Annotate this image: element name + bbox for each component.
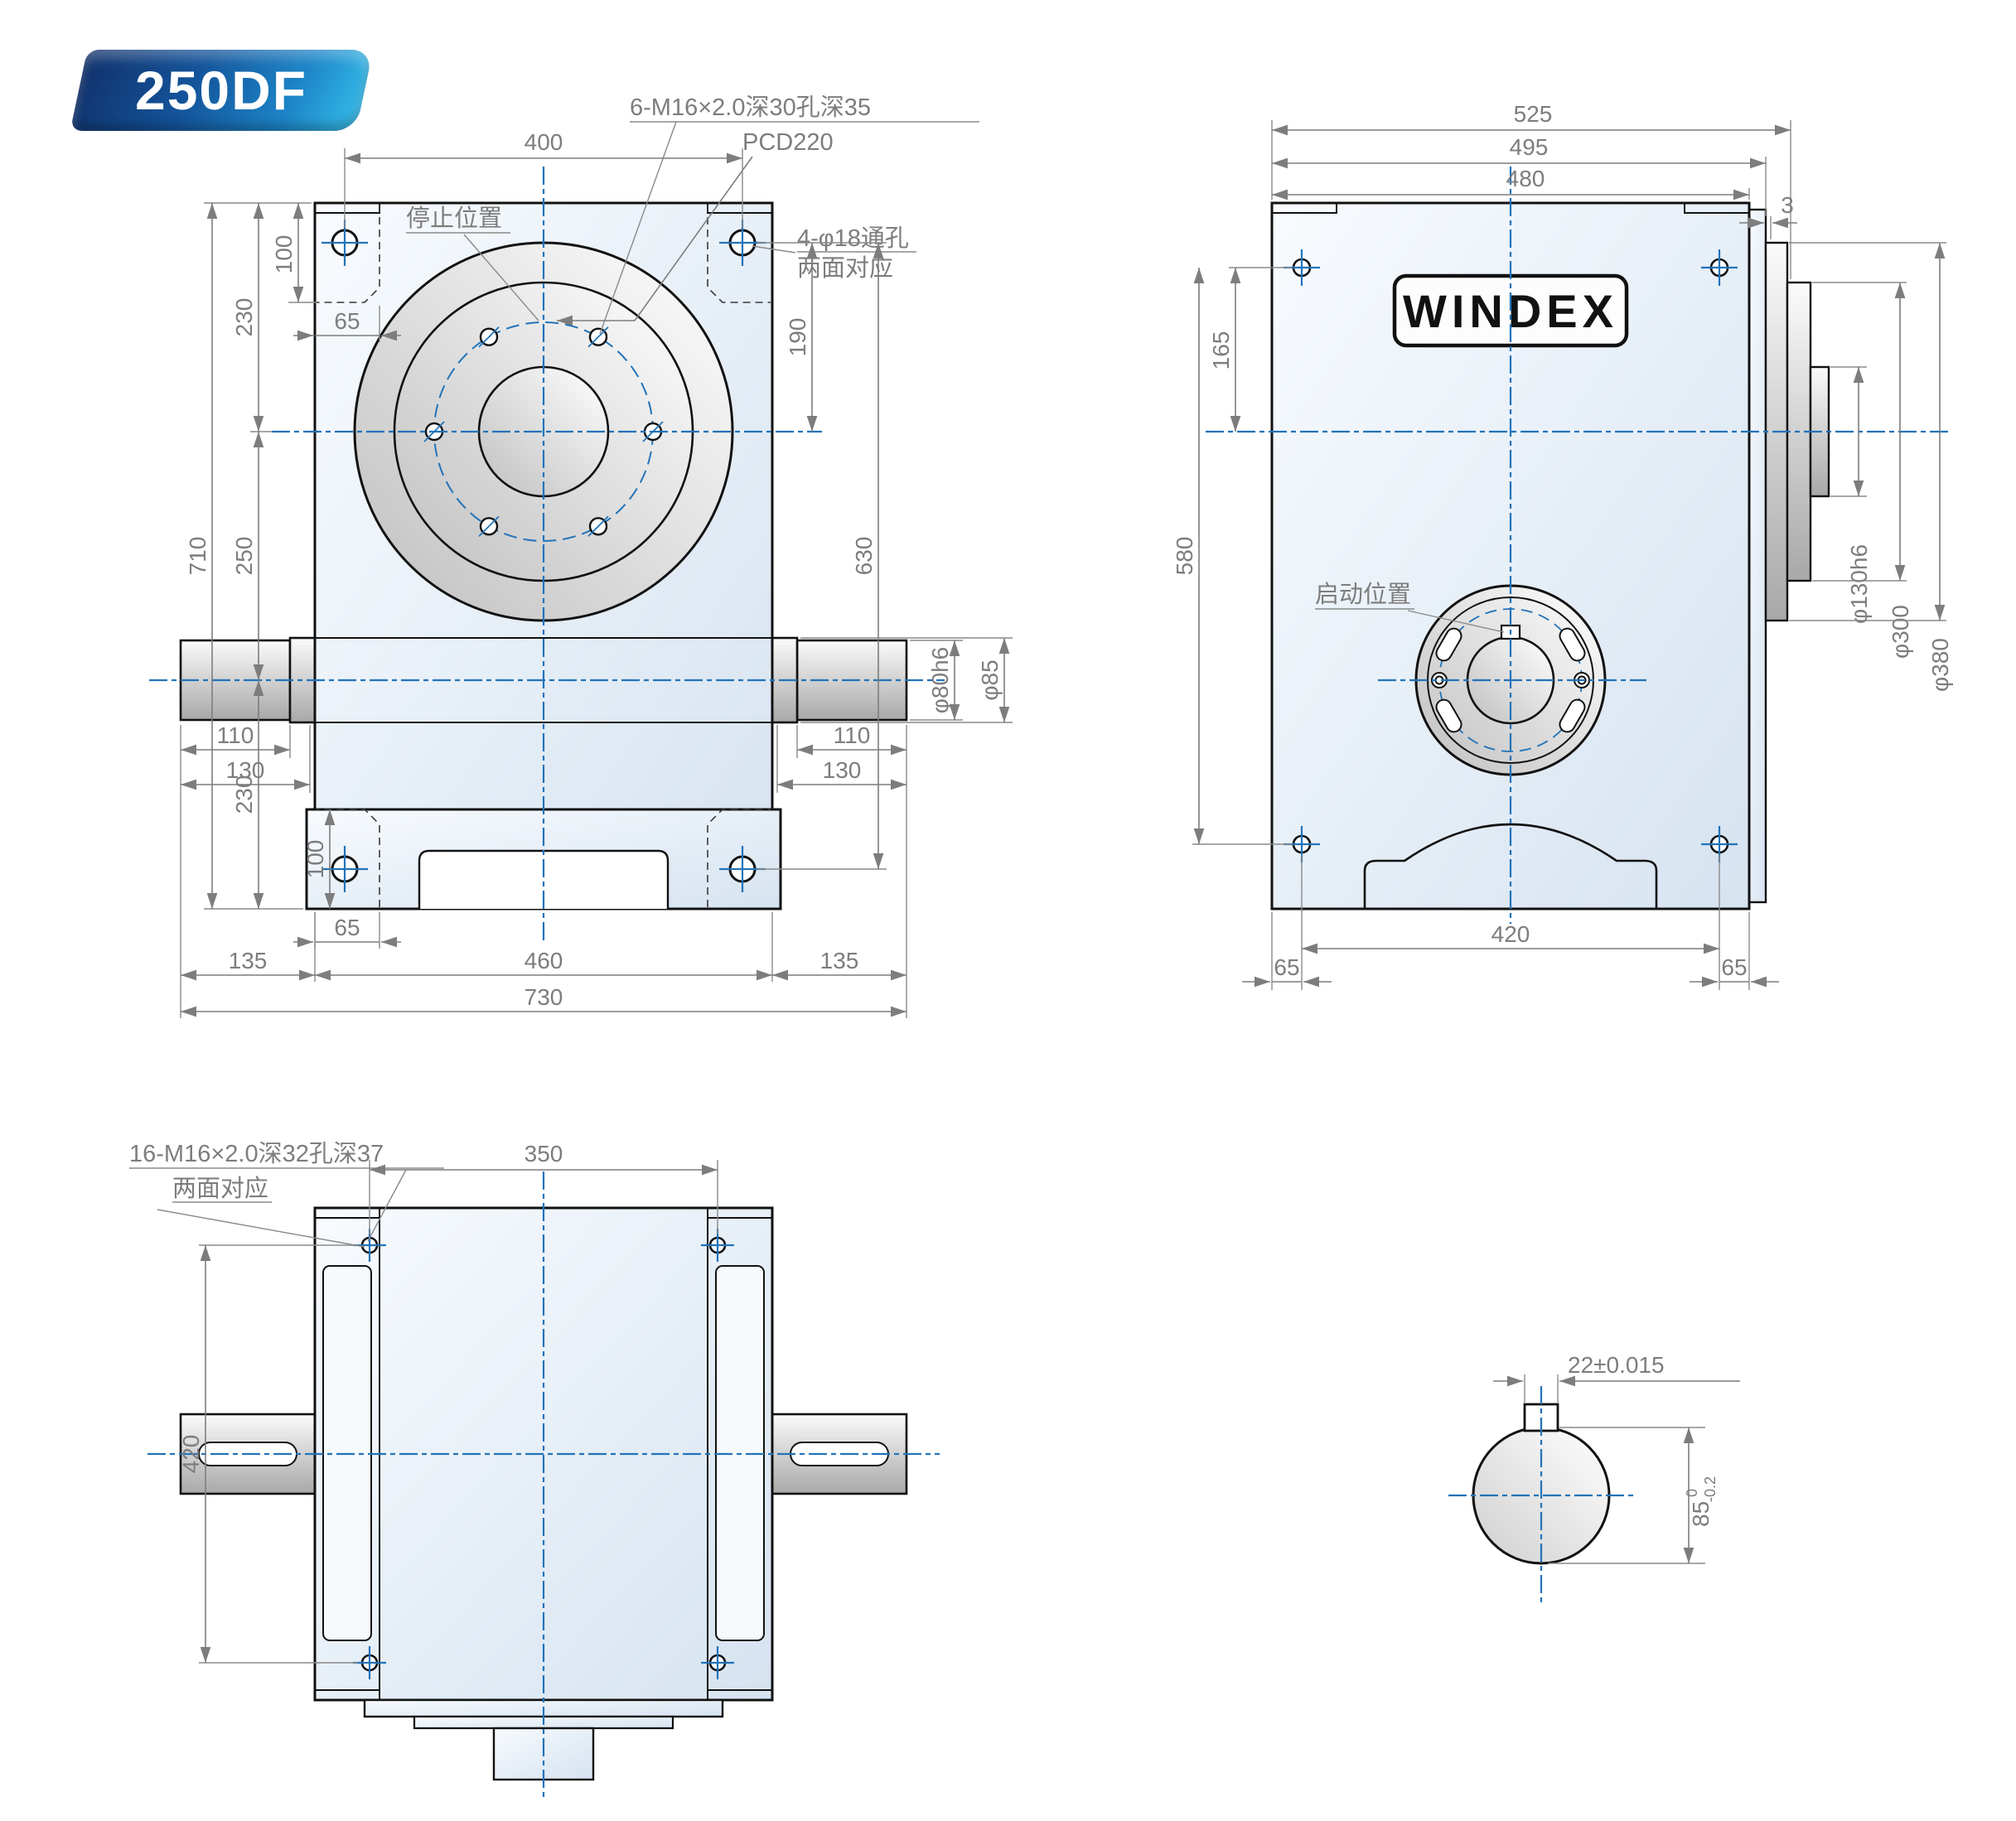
svg-text:110: 110 [834, 722, 871, 748]
svg-text:495: 495 [1510, 134, 1549, 160]
svg-text:65: 65 [334, 308, 360, 334]
bottom-tap-text: 16-M16×2.0深32孔深37 [129, 1141, 384, 1167]
svg-text:480: 480 [1506, 166, 1545, 191]
svg-text:230: 230 [231, 298, 257, 337]
rear-plate-and-steps [1749, 210, 1829, 902]
dim-135-right: 135 [772, 948, 906, 975]
dim-230-top: 230 [231, 203, 272, 432]
tap-note-text: 6-M16×2.0深30孔深35 [630, 94, 871, 121]
svg-text:420: 420 [178, 1435, 204, 1474]
svg-text:φ300: φ300 [1888, 605, 1913, 659]
shaft-section-detail: 22±0.015 85 0 -0.2 [1351, 1288, 1815, 1678]
dim-key-22: 22±0.015 [1493, 1352, 1740, 1403]
dim-730: 730 [181, 984, 906, 1012]
through-hole-text: 4-φ18通孔 [797, 225, 909, 252]
tol-upper: 0 [1684, 1489, 1700, 1497]
svg-text:110: 110 [217, 722, 254, 748]
key-dim-text: 22±0.015 [1568, 1352, 1665, 1378]
dim-135-left: 135 [181, 912, 315, 982]
svg-text:65: 65 [1721, 954, 1747, 980]
svg-text:400: 400 [525, 129, 563, 155]
svg-text:460: 460 [525, 948, 563, 973]
svg-text:65: 65 [334, 915, 360, 940]
svg-text:630: 630 [851, 537, 877, 576]
bottom-both-text: 两面对应 [172, 1175, 268, 1202]
bottom-view: 16-M16×2.0深32孔深37 两面对应 350 420 [50, 1125, 1085, 1821]
dim-480: 480 [1272, 166, 1749, 200]
shaft-section [1448, 1386, 1634, 1605]
svg-text:65: 65 [1274, 954, 1299, 980]
svg-text:φ80h6: φ80h6 [927, 647, 953, 713]
dim-65-side-right: 65 [1690, 912, 1779, 990]
svg-text:730: 730 [525, 984, 563, 1010]
drawing-sheet: 250DF [0, 0, 2016, 1821]
svg-text:3: 3 [1781, 192, 1794, 218]
svg-text:525: 525 [1514, 101, 1553, 127]
through-hole-note: 4-φ18通孔 两面对应 [752, 225, 916, 282]
dim-65-bottom: 65 [293, 912, 401, 949]
svg-text:190: 190 [785, 318, 810, 357]
svg-text:135: 135 [820, 948, 859, 973]
tol-lower: -0.2 [1702, 1476, 1719, 1502]
svg-text:100: 100 [271, 235, 297, 274]
svg-text:100: 100 [302, 840, 328, 879]
stop-position-text: 停止位置 [406, 205, 502, 232]
svg-text:420: 420 [1491, 921, 1530, 947]
pcd-note-text: PCD220 [742, 129, 834, 156]
side-view: WINDEX [1156, 87, 1985, 1106]
dia-text: 85 [1688, 1501, 1714, 1527]
svg-text:135: 135 [229, 948, 268, 973]
svg-text:φ380: φ380 [1927, 638, 1953, 692]
svg-text:165: 165 [1208, 331, 1234, 370]
dim-100-top: 100 [271, 203, 317, 302]
svg-text:580: 580 [1172, 537, 1197, 576]
svg-text:250: 250 [231, 537, 257, 576]
svg-text:710: 710 [185, 537, 210, 576]
start-position-text: 启动位置 [1315, 581, 1411, 608]
dim-130h6: φ130h6 [1830, 367, 1872, 624]
svg-text:350: 350 [525, 1141, 563, 1167]
svg-text:130: 130 [823, 757, 862, 783]
dim-65-side-left: 65 [1242, 912, 1332, 990]
svg-text:φ130h6: φ130h6 [1846, 544, 1872, 624]
svg-text:φ85: φ85 [977, 659, 1003, 700]
front-view: 6-M16×2.0深30孔深35 PCD220 停止位置 4-φ18通孔 两面对… [50, 87, 1085, 1106]
svg-text:130: 130 [226, 757, 265, 783]
